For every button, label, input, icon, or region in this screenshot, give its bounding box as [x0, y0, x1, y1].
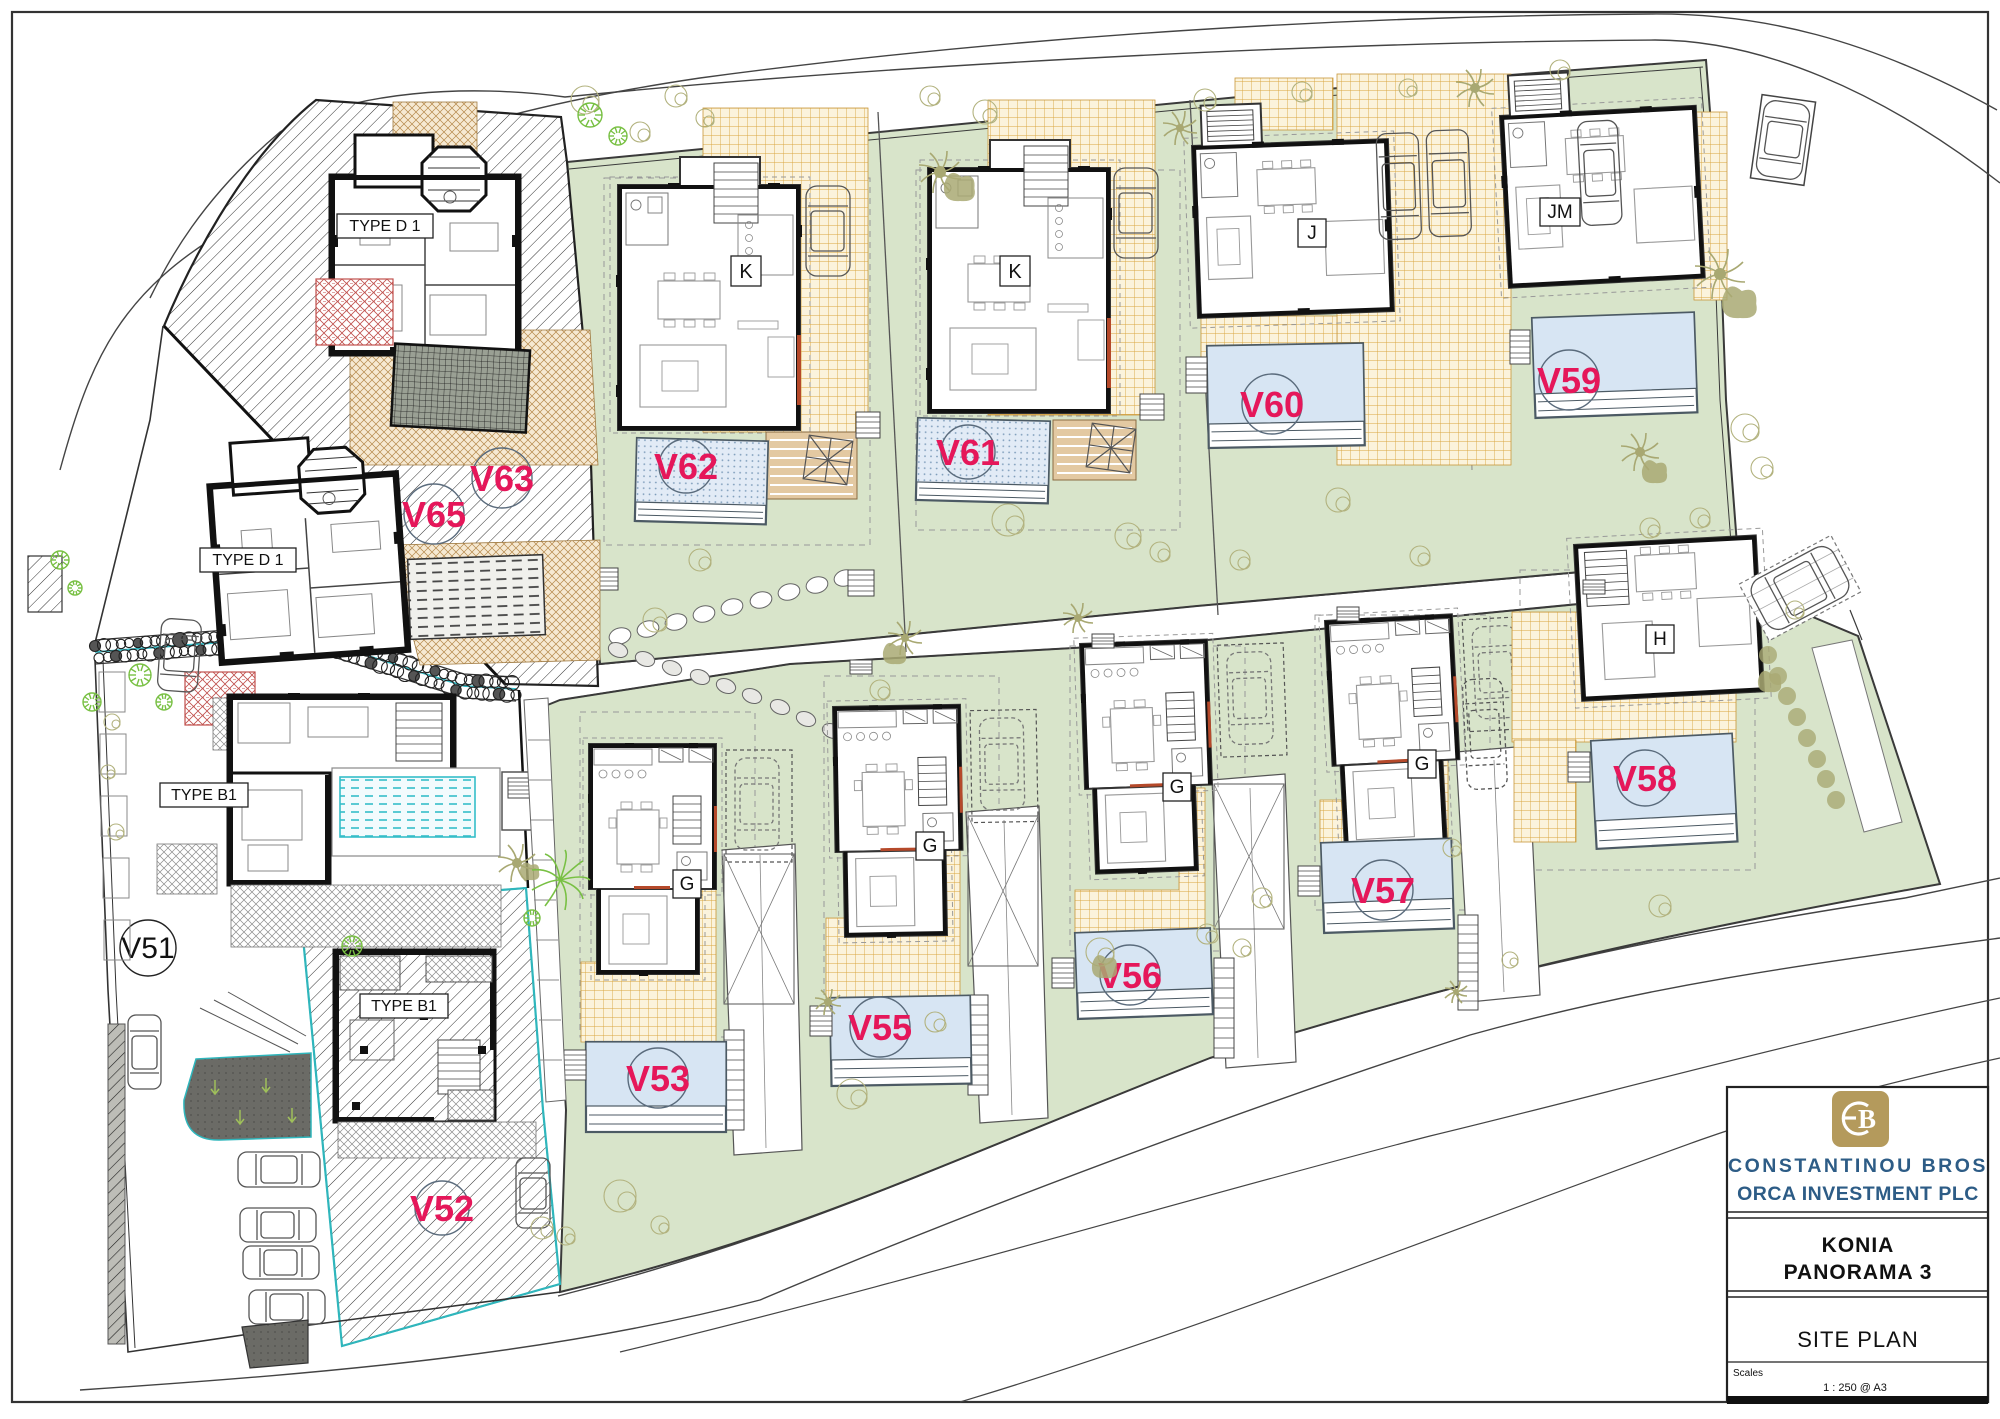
svg-text:V65: V65: [402, 494, 466, 535]
svg-text:SITE PLAN: SITE PLAN: [1797, 1327, 1918, 1352]
svg-text:TYPE D 1: TYPE D 1: [349, 218, 420, 235]
svg-text:V60: V60: [1240, 384, 1304, 425]
svg-text:V61: V61: [936, 432, 1000, 473]
svg-text:G: G: [680, 874, 695, 895]
svg-text:V53: V53: [626, 1058, 690, 1099]
svg-text:PANORAMA 3: PANORAMA 3: [1784, 1261, 1933, 1284]
svg-text:V55: V55: [848, 1007, 912, 1048]
svg-text:V59: V59: [1537, 360, 1601, 401]
svg-text:K: K: [1008, 261, 1022, 283]
svg-text:KONIA: KONIA: [1822, 1234, 1895, 1257]
svg-text:B: B: [1858, 1104, 1876, 1134]
svg-text:K: K: [739, 261, 753, 283]
svg-text:ORCA INVESTMENT PLC: ORCA INVESTMENT PLC: [1737, 1183, 1979, 1205]
svg-text:V63: V63: [470, 458, 534, 499]
svg-text:G: G: [923, 836, 938, 857]
svg-text:G: G: [1415, 754, 1430, 775]
svg-text:1 : 250 @ A3: 1 : 250 @ A3: [1823, 1382, 1887, 1394]
svg-text:J: J: [1307, 223, 1317, 244]
svg-text:V52: V52: [410, 1188, 474, 1229]
svg-text:H: H: [1653, 629, 1667, 650]
svg-text:V57: V57: [1351, 870, 1415, 911]
svg-text:CONSTANTINOU BROS: CONSTANTINOU BROS: [1728, 1155, 1988, 1177]
svg-text:V58: V58: [1613, 758, 1677, 799]
svg-text:TYPE D 1: TYPE D 1: [212, 552, 283, 569]
svg-text:G: G: [1170, 777, 1185, 798]
svg-text:V62: V62: [654, 446, 718, 487]
svg-text:TYPE B1: TYPE B1: [371, 998, 437, 1015]
svg-text:Scales: Scales: [1733, 1368, 1763, 1379]
svg-text:TYPE B1: TYPE B1: [171, 787, 237, 804]
svg-text:JM: JM: [1547, 202, 1572, 223]
